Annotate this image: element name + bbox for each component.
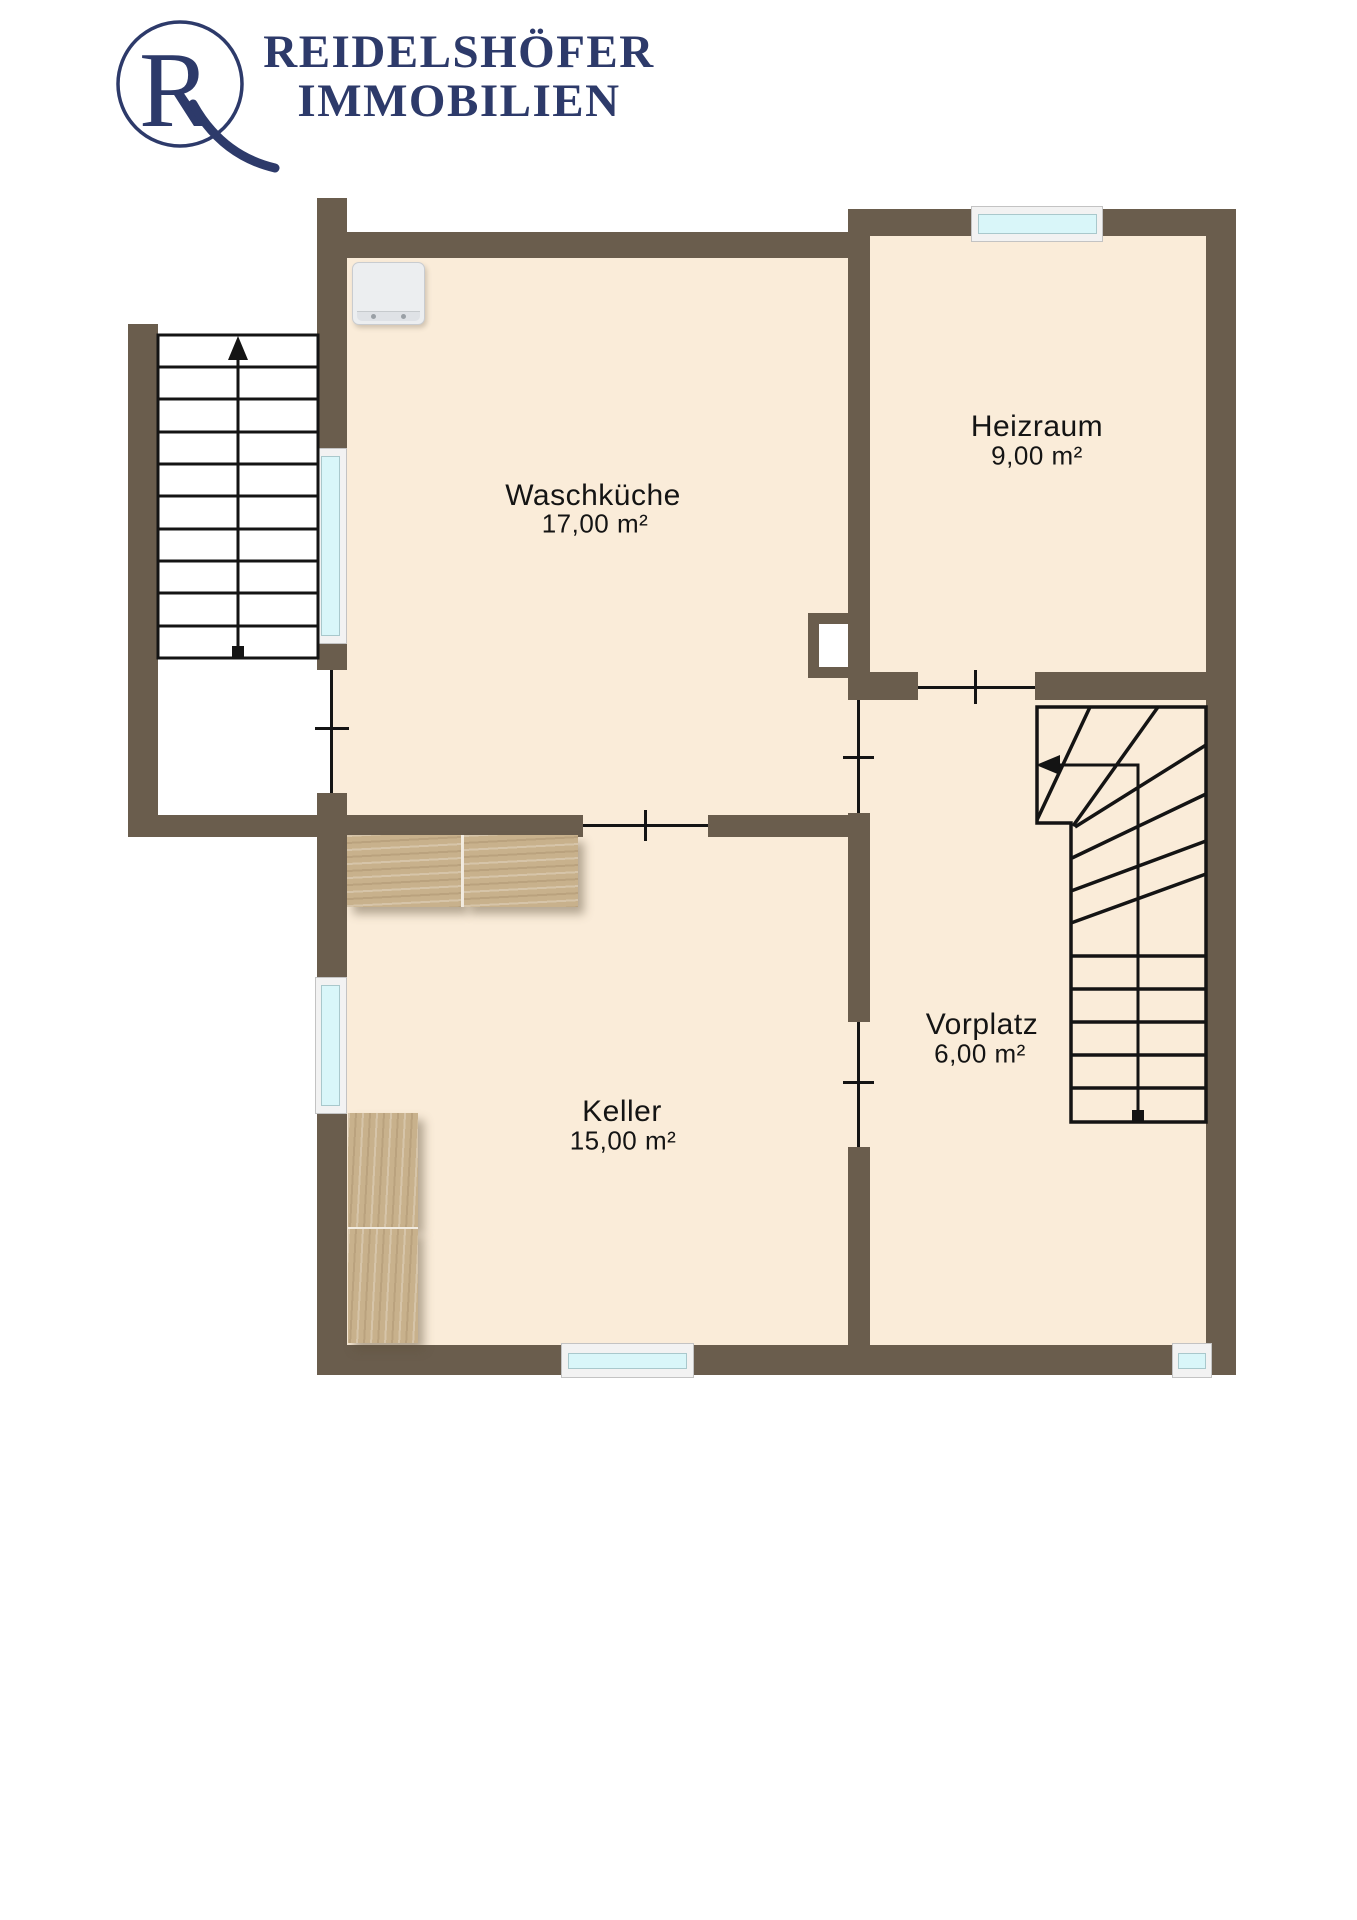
- door-waschkueche-keller-tick: [644, 810, 647, 841]
- brand-name: REIDELSHÖFER IMMOBILIEN: [263, 28, 655, 126]
- washing-machine-knob: [371, 314, 376, 319]
- door-keller-vorplatz-tick: [843, 1081, 874, 1084]
- cabinet-keller-left-1: [348, 1113, 418, 1227]
- wall-divider-vertical-top: [848, 236, 870, 672]
- room-label-vorplatz: Vorplatz: [926, 1008, 1038, 1042]
- cabinet-keller-left-2: [348, 1229, 418, 1343]
- wall-divider-horizontal-right: [708, 815, 870, 837]
- cabinet-keller-top-1: [347, 835, 462, 907]
- window-keller-bottom-glass: [568, 1353, 687, 1369]
- brand-name-line2: IMMOBILIEN: [263, 77, 655, 126]
- wall-left-lower: [317, 1114, 347, 1375]
- brand-monogram-letter: R: [139, 31, 211, 150]
- door-keller-vorplatz: [857, 1022, 860, 1147]
- wall-divider-vertical-mid: [848, 813, 870, 1022]
- room-label-keller: Keller: [582, 1095, 662, 1129]
- floor-plan-page: R REIDELSHÖFER IMMOBILIEN: [0, 0, 1357, 1920]
- brand-name-line1: REIDELSHÖFER: [263, 28, 655, 77]
- room-area-vorplatz: 6,00 m²: [934, 1039, 1026, 1070]
- room-area-keller: 15,00 m²: [570, 1126, 677, 1157]
- wall-right: [1206, 209, 1236, 1375]
- wall-top-waschkueche: [317, 232, 870, 258]
- window-heizraum-top-glass: [978, 214, 1097, 234]
- washing-machine-knob: [401, 314, 406, 319]
- window-vorplatz-bottom-glass: [1178, 1353, 1206, 1369]
- wall-left-stub: [317, 642, 347, 670]
- room-label-heizraum: Heizraum: [971, 410, 1103, 444]
- wall-bottom-left-segment: [317, 1345, 563, 1375]
- wall-stair-enclosure-left: [128, 324, 158, 837]
- wall-divider-horizontal-left: [128, 815, 583, 837]
- floor-keller: [347, 837, 848, 1345]
- washing-machine: [352, 262, 425, 325]
- wall-top-heizraum-left: [848, 209, 971, 236]
- cabinet-keller-top-2: [464, 835, 578, 907]
- washing-machine-panel: [357, 311, 420, 321]
- wall-bottom-mid-segment: [692, 1345, 1174, 1375]
- exterior-staircase: [158, 335, 318, 658]
- wall-divider-vertical-bottom: [848, 1147, 870, 1345]
- window-keller-left-glass: [321, 985, 340, 1106]
- wall-heizraum-bottom-left: [848, 672, 918, 700]
- door-waschkueche-exterior-tick: [315, 727, 349, 730]
- door-waschkueche-vorplatz-tick: [843, 756, 874, 759]
- chimney-niche-opening: [819, 624, 848, 667]
- door-heizraum-vorplatz-tick: [974, 670, 977, 704]
- window-waschkueche-left-glass: [321, 456, 340, 636]
- room-area-waschkueche: 17,00 m²: [542, 509, 649, 540]
- wall-heizraum-bottom-right: [1035, 672, 1206, 700]
- floor-door-gap-1: [331, 670, 347, 793]
- door-waschkueche-exterior: [330, 670, 333, 793]
- brand-logo: R REIDELSHÖFER IMMOBILIEN: [0, 0, 700, 190]
- room-area-heizraum: 9,00 m²: [991, 441, 1083, 472]
